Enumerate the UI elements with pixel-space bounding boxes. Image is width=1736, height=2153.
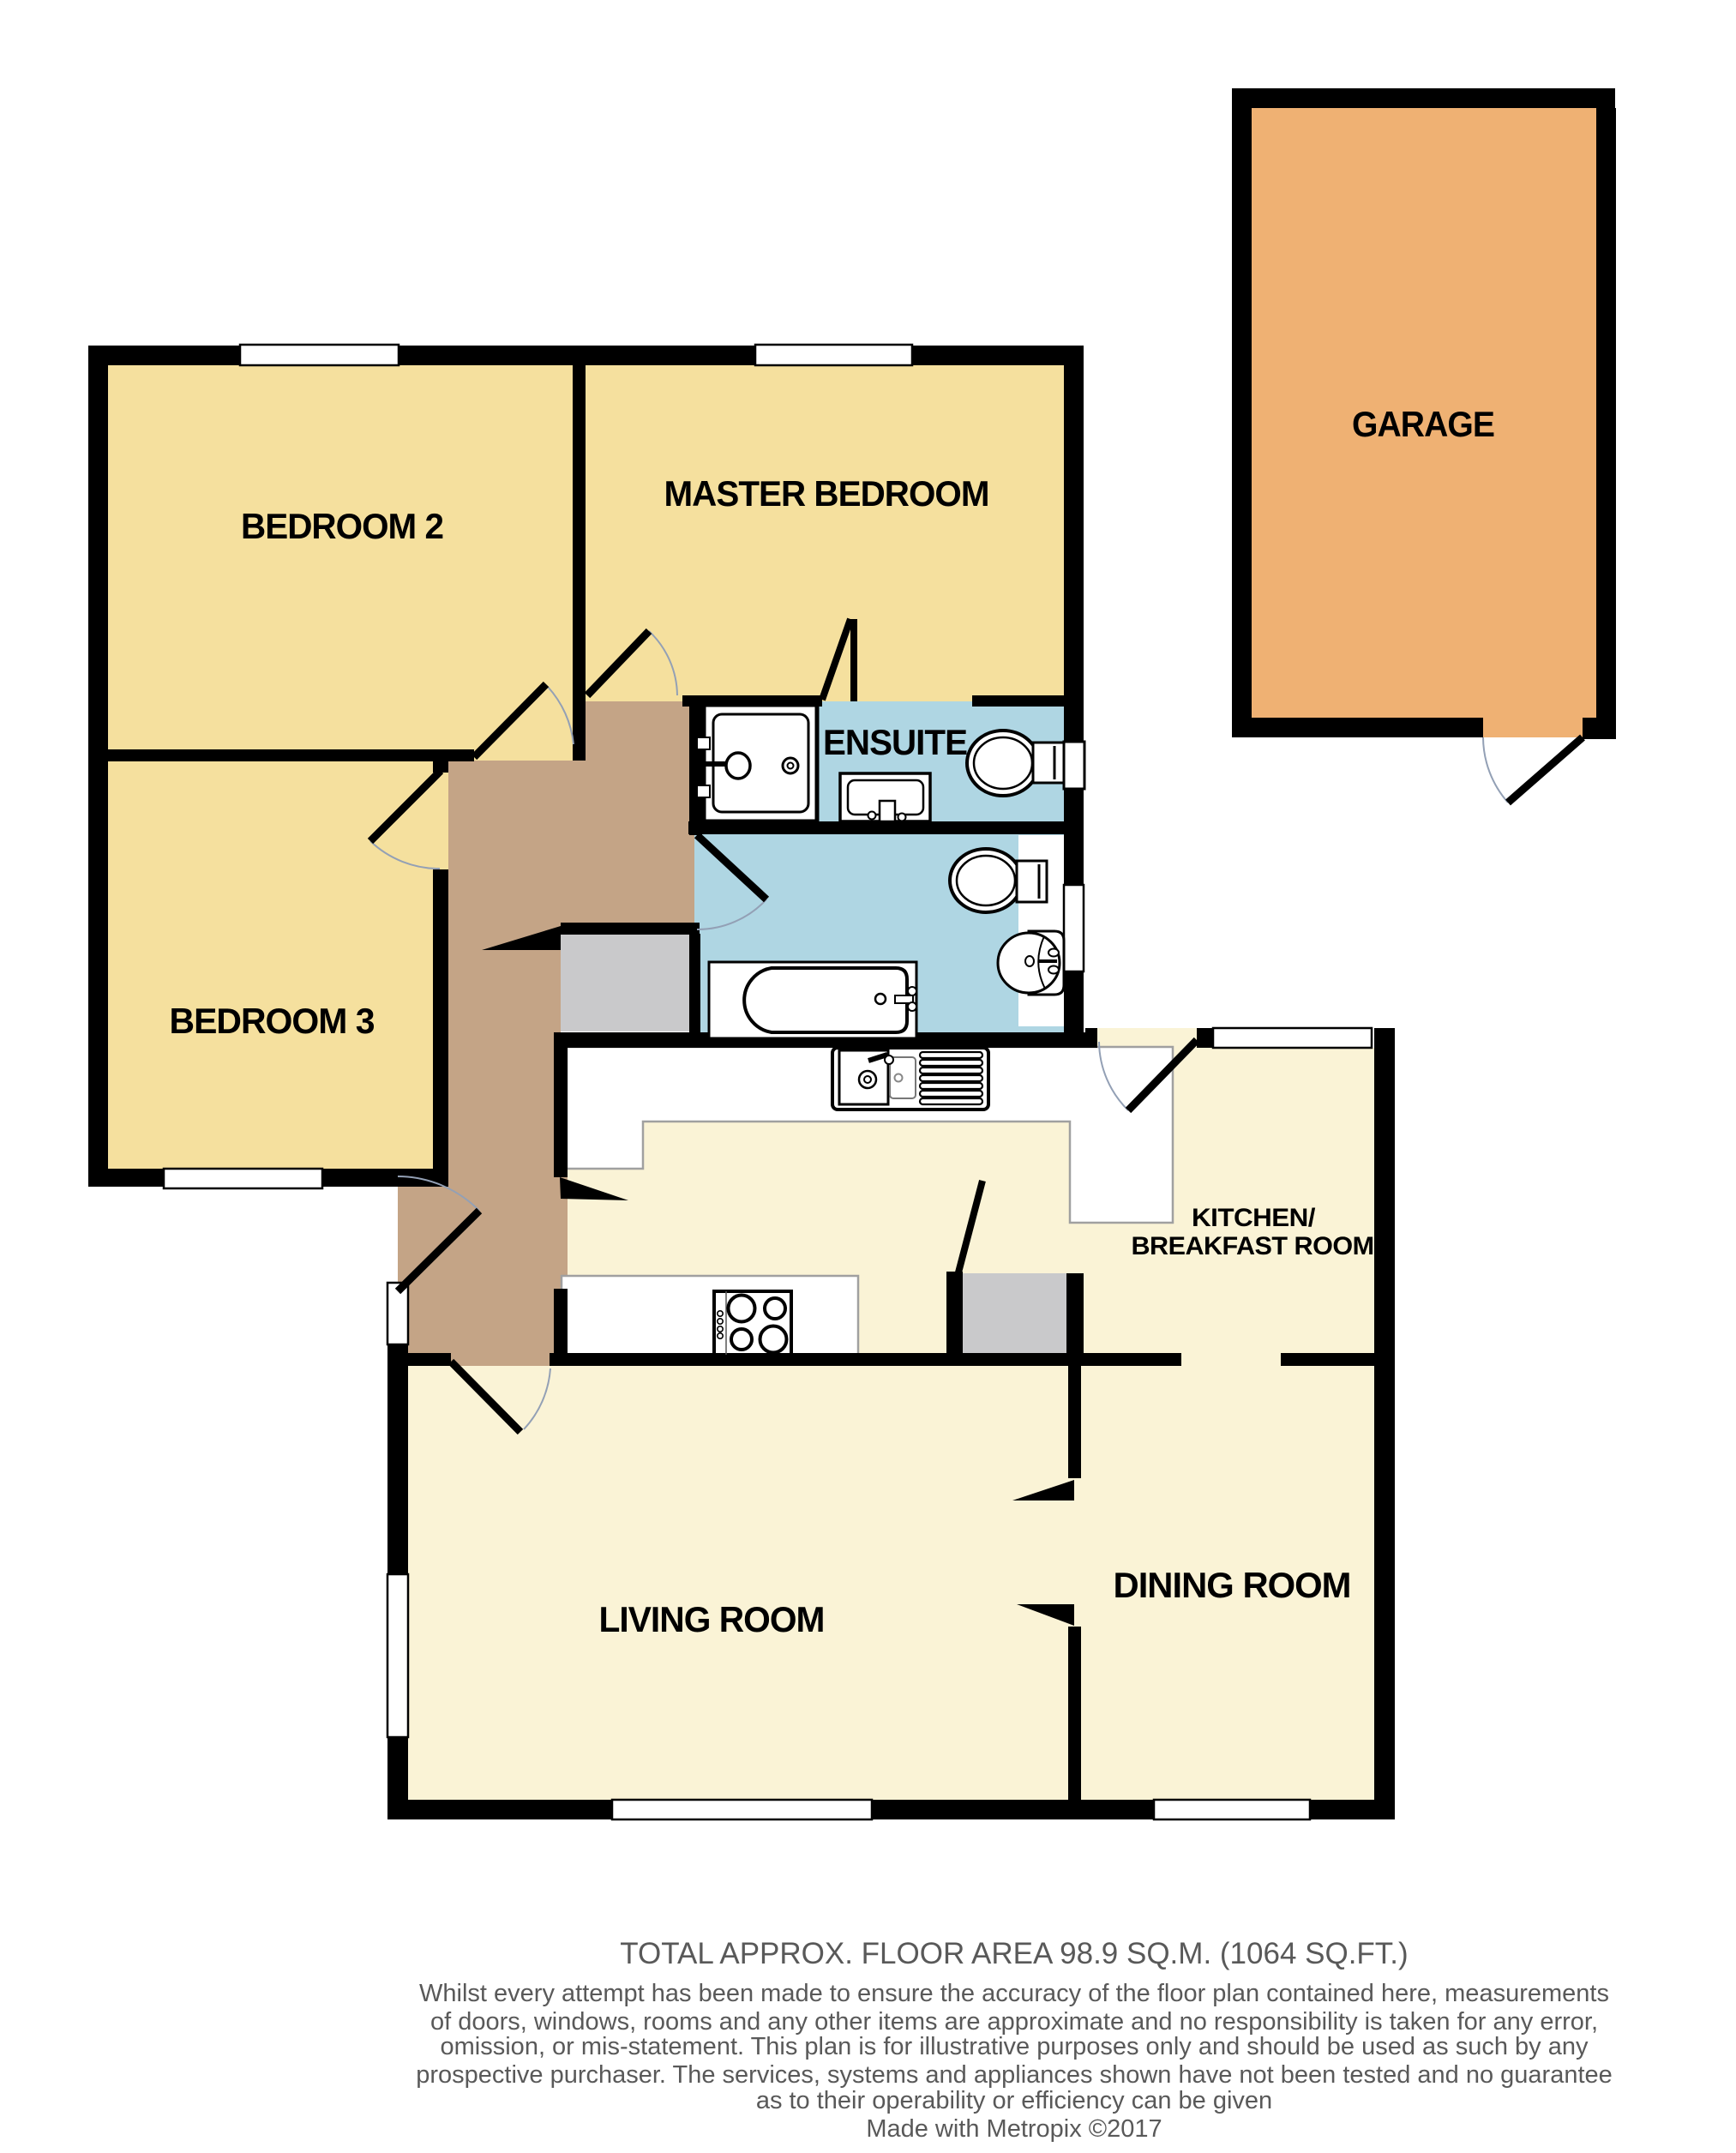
svg-text:omission, or mis-statement. Th: omission, or mis-statement. This plan is…: [441, 2033, 1589, 2060]
svg-text:BREAKFAST ROOM: BREAKFAST ROOM: [1132, 1232, 1374, 1260]
svg-text:BEDROOM 3: BEDROOM 3: [170, 1001, 375, 1041]
svg-text:as to their operability or eff: as to their operability or efficiency ca…: [756, 2087, 1272, 2114]
svg-text:MASTER BEDROOM: MASTER BEDROOM: [664, 473, 989, 514]
svg-text:of doors, windows, rooms and a: of doors, windows, rooms and any other i…: [430, 2008, 1598, 2036]
svg-text:LIVING ROOM: LIVING ROOM: [599, 1599, 825, 1639]
svg-text:GARAGE: GARAGE: [1352, 404, 1494, 444]
svg-text:prospective purchaser. The ser: prospective purchaser. The services, sys…: [416, 2061, 1613, 2089]
svg-text:BEDROOM 2: BEDROOM 2: [241, 506, 443, 546]
svg-text:DINING ROOM: DINING ROOM: [1114, 1565, 1351, 1605]
svg-text:TOTAL APPROX. FLOOR AREA 98.9: TOTAL APPROX. FLOOR AREA 98.9 SQ.M. (106…: [620, 1937, 1408, 1970]
svg-text:KITCHEN/: KITCHEN/: [1192, 1204, 1316, 1232]
svg-text:Whilst every attempt has been: Whilst every attempt has been made to en…: [419, 1980, 1609, 2007]
svg-text:ENSUITE: ENSUITE: [823, 722, 967, 762]
svg-text:Made with Metropix ©2017: Made with Metropix ©2017: [866, 2115, 1162, 2143]
